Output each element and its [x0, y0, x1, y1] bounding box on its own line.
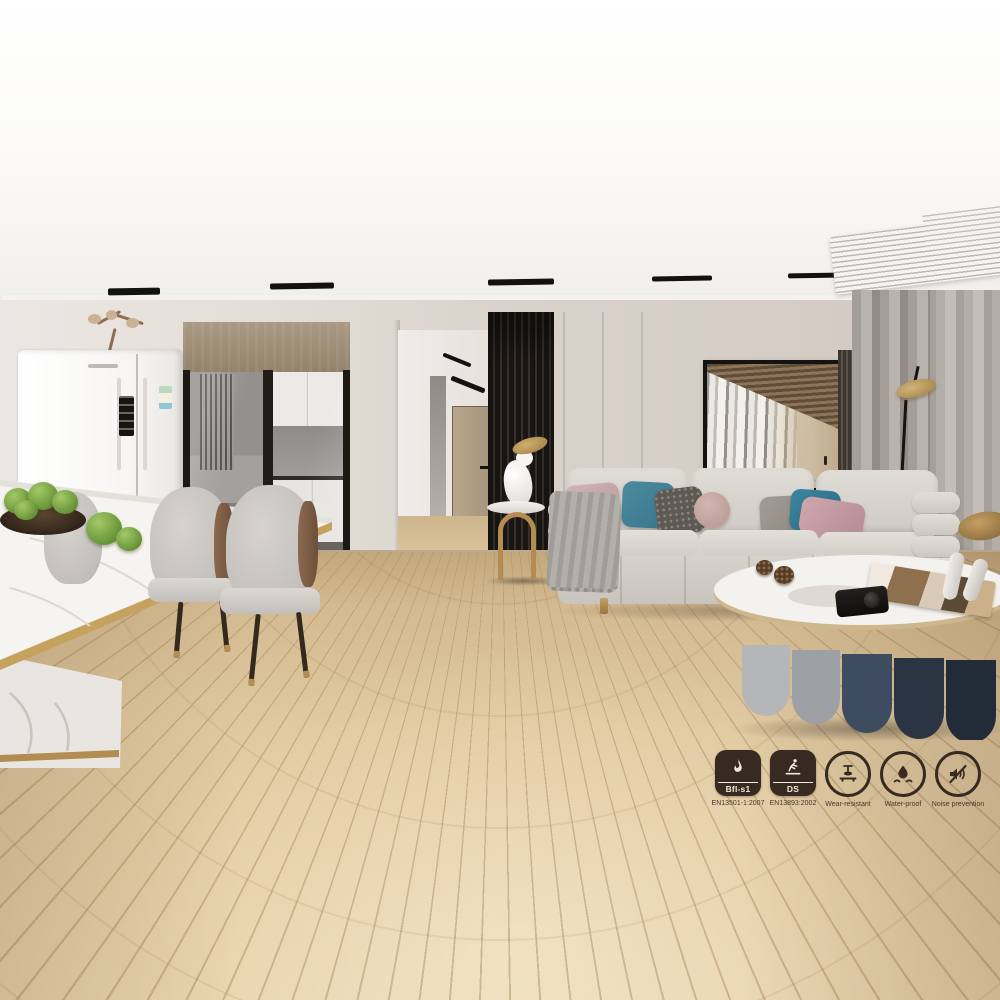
- door-handle: [480, 466, 488, 469]
- dried-bloom: [106, 310, 117, 320]
- throw-blanket: [546, 491, 621, 593]
- badge-caption: Wear-resistant: [825, 801, 870, 808]
- sofa-arm-channel: [912, 492, 960, 513]
- table-arch-navy: [842, 654, 892, 733]
- hallway-ceiling-light: [442, 353, 471, 368]
- fridge-control-panel: [119, 396, 134, 436]
- dried-bloom: [88, 314, 101, 324]
- pillow-round-blush: [694, 492, 730, 528]
- ceiling-vent-light: [788, 273, 838, 279]
- ceiling-vent-light: [652, 275, 712, 281]
- dried-bloom: [126, 318, 139, 328]
- wood-door: [452, 406, 490, 518]
- fridge-logo: [88, 364, 118, 368]
- pinecone: [774, 566, 794, 584]
- table-arch-navy: [894, 658, 944, 739]
- badge-ring: [880, 751, 926, 797]
- badge-caption: EN13893:2002: [770, 800, 817, 807]
- badge-class-label: DS: [773, 782, 813, 796]
- badge-tile: DS: [770, 750, 816, 796]
- camera-lens: [863, 591, 881, 609]
- flame-icon: [728, 750, 748, 782]
- ceiling-vent-light: [270, 282, 334, 289]
- slip-fall-icon: [783, 750, 803, 782]
- green-fruit: [52, 490, 78, 514]
- badge-caption: Noise prevention: [932, 801, 985, 808]
- pinecone: [756, 560, 773, 575]
- badge-water-proof: Water-proof: [879, 750, 927, 808]
- sofa-gold-leg: [600, 598, 608, 614]
- artwork-person-figure: [824, 456, 827, 465]
- energy-label-sticker: [159, 386, 172, 409]
- badge-slip-resistance: DS EN13893:2002: [769, 750, 817, 807]
- badge-ring: [935, 751, 981, 797]
- water-drop-icon: [891, 762, 915, 786]
- hallway: [398, 330, 492, 558]
- speaker-mute-icon: [946, 762, 970, 786]
- hallway-wall-panel: [430, 376, 446, 518]
- table-arch-navy: [946, 660, 996, 740]
- table-arch-silver: [742, 645, 790, 716]
- certification-badges: Bfl-s1 EN13501-1:2007 DS EN13893:2002: [714, 750, 986, 808]
- side-table-arch-legs: [498, 512, 536, 580]
- badge-wear-resistant: Wear-resistant: [824, 750, 872, 808]
- badge-fire-rating: Bfl-s1 EN13501-1:2007: [714, 750, 762, 807]
- badge-tile: Bfl-s1: [715, 750, 761, 796]
- badge-noise-prevention: Noise prevention: [934, 750, 982, 808]
- table-arch-silver: [792, 650, 840, 724]
- ceiling-vent-light: [108, 288, 160, 296]
- green-fruit: [116, 527, 142, 551]
- badge-caption: Water-proof: [885, 801, 922, 808]
- badge-class-label: Bfl-s1: [718, 782, 758, 796]
- ceiling-vent-light: [488, 278, 554, 285]
- sofa-arm-channel: [912, 514, 960, 535]
- door-header-wood: [183, 322, 350, 372]
- badge-caption: EN13501-1:2007: [712, 800, 765, 807]
- hallway-ceiling-light: [450, 375, 485, 393]
- green-fruit: [14, 500, 38, 520]
- fridge-handle: [143, 378, 147, 470]
- abrasion-test-icon: [836, 762, 860, 786]
- living-room-photo: Bfl-s1 EN13501-1:2007 DS EN13893:2002: [0, 0, 1000, 1000]
- chair-leather-back: [298, 501, 318, 587]
- badge-ring: [825, 751, 871, 797]
- black-camera: [835, 585, 890, 617]
- chair-seat: [220, 588, 320, 614]
